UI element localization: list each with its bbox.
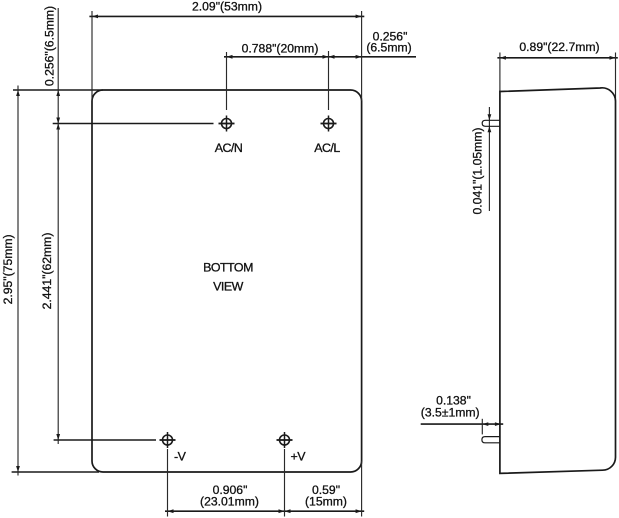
svg-text:BOTTOM: BOTTOM xyxy=(203,261,253,275)
svg-text:AC/L: AC/L xyxy=(314,141,340,155)
svg-text:(23.01mm): (23.01mm) xyxy=(200,495,259,509)
svg-text:AC/N: AC/N xyxy=(215,141,243,155)
svg-text:0.89"(22.7mm): 0.89"(22.7mm) xyxy=(519,40,599,54)
svg-text:2.95"(75mm): 2.95"(75mm) xyxy=(1,234,15,304)
svg-text:-V: -V xyxy=(174,450,187,464)
svg-text:0.041"(1.05mm): 0.041"(1.05mm) xyxy=(471,128,485,215)
svg-text:2.09"(53mm): 2.09"(53mm) xyxy=(192,0,262,14)
svg-text:0.788"(20mm): 0.788"(20mm) xyxy=(242,42,319,56)
svg-text:VIEW: VIEW xyxy=(213,280,243,294)
svg-text:0.256"(6.5mm): 0.256"(6.5mm) xyxy=(43,6,57,86)
svg-text:+V: +V xyxy=(291,450,307,464)
svg-text:(15mm): (15mm) xyxy=(305,495,347,509)
svg-text:2.441"(62mm): 2.441"(62mm) xyxy=(40,233,54,310)
svg-text:(6.5mm): (6.5mm) xyxy=(366,40,411,54)
svg-text:(3.5±1mm): (3.5±1mm) xyxy=(421,406,480,420)
